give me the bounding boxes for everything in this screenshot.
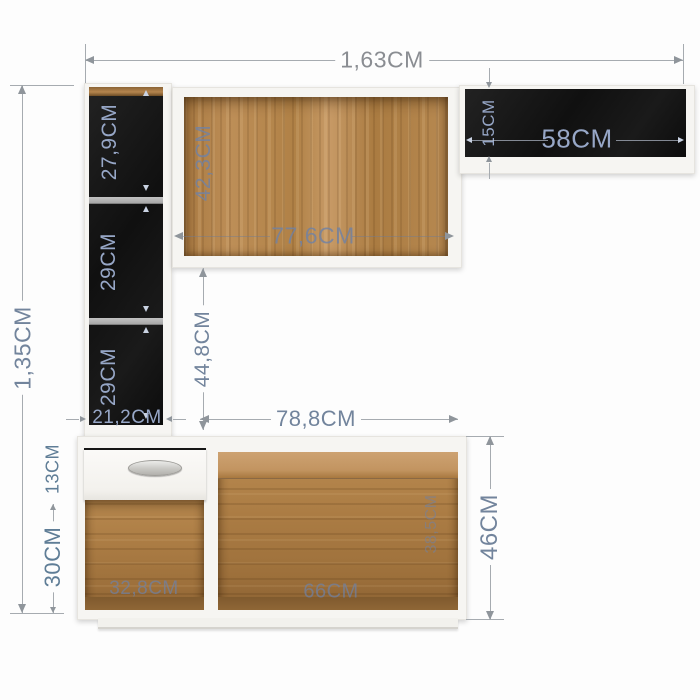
- left-opening-width-label: 32,8CM: [109, 578, 179, 600]
- arrow-up-icon: [143, 206, 149, 212]
- arrow-up-icon: [18, 85, 26, 94]
- extension-line: [466, 619, 504, 620]
- furniture-diagram: 1,63CM 1,35CM 27,9CM 29CM 29CM 21,2CM 42…: [0, 0, 700, 700]
- left-tower-top-panel: [89, 87, 163, 96]
- arrow-left-icon: [200, 415, 209, 423]
- extension-line: [489, 163, 490, 179]
- gap-height-label: 44,8CM: [191, 306, 215, 393]
- arrow-down-icon: [486, 82, 492, 88]
- middle-section-height-label: 29CM: [97, 233, 121, 291]
- right-opening-depth-label: 38,5CM: [423, 494, 441, 553]
- extension-line: [85, 44, 86, 84]
- base-top-width-label: 78,8CM: [271, 406, 361, 432]
- drawer-handle-icon: [128, 460, 182, 476]
- drawer-height-label: 13CM: [43, 439, 64, 499]
- arrow-down-icon: [143, 306, 149, 312]
- bottom-section-height-label: 29CM: [97, 348, 121, 406]
- dimension-line: [472, 140, 548, 141]
- arrow-left-icon: [166, 416, 172, 422]
- right-opening-width-label: 66CM: [303, 581, 358, 604]
- upper-interior-height-label: 42,3CM: [192, 125, 216, 202]
- shelf-width-label: 58CM: [541, 124, 612, 155]
- arrow-left-icon: [85, 56, 94, 64]
- arrow-down-icon: [18, 604, 26, 613]
- upper-interior-width-label: 77,6CM: [271, 223, 355, 250]
- overall-height-label: 1,35CM: [10, 301, 37, 395]
- extension-line: [173, 419, 186, 420]
- left-opening-height-label: 30CM: [40, 522, 66, 593]
- overall-width-label: 1,63CM: [335, 47, 429, 74]
- arrow-down-icon: [486, 611, 494, 620]
- dimension-line: [178, 236, 270, 237]
- arrow-right-icon: [80, 416, 86, 422]
- tower-width-label: 21,2CM: [92, 407, 162, 429]
- dimension-line: [616, 140, 678, 141]
- base-plinth: [98, 618, 458, 629]
- extension-line: [66, 419, 79, 420]
- top-section-height-label: 27,9CM: [98, 104, 122, 181]
- left-tower-shelf: [89, 318, 163, 325]
- arrow-up-icon: [50, 504, 56, 510]
- arrow-down-icon: [50, 607, 56, 613]
- arrow-right-icon: [678, 137, 684, 143]
- arrow-up-icon: [486, 156, 492, 162]
- dimension-line: [352, 236, 450, 237]
- arrow-left-icon: [466, 137, 472, 143]
- extension-line: [466, 436, 504, 437]
- arrow-up-icon: [143, 90, 149, 96]
- arrow-up-icon: [143, 327, 149, 333]
- arrow-up-icon: [199, 268, 207, 277]
- right-opening-top-shelf: [218, 452, 458, 479]
- arrow-up-icon: [486, 436, 494, 445]
- base-height-label: 46CM: [476, 489, 504, 565]
- arrow-left-icon: [174, 232, 183, 240]
- arrow-right-icon: [445, 232, 454, 240]
- arrow-right-icon: [449, 415, 458, 423]
- extension-line: [10, 613, 64, 614]
- left-tower-shelf: [89, 197, 163, 204]
- extension-line: [683, 44, 684, 84]
- arrow-down-icon: [143, 185, 149, 191]
- arrow-right-icon: [674, 56, 683, 64]
